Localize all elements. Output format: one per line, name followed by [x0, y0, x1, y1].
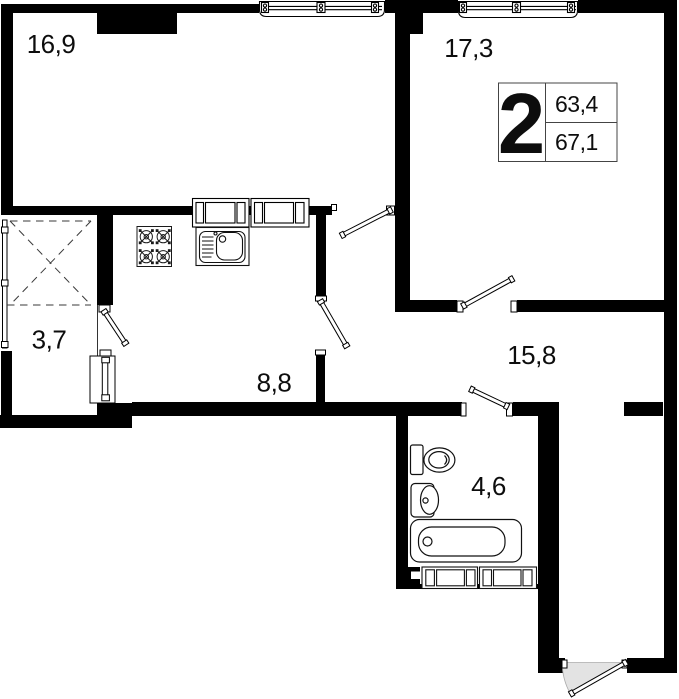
svg-text:8,8: 8,8	[257, 368, 292, 398]
svg-text:2: 2	[498, 77, 545, 172]
svg-text:67,1: 67,1	[555, 129, 598, 155]
svg-text:3,7: 3,7	[32, 325, 67, 355]
svg-text:4,6: 4,6	[471, 471, 506, 501]
svg-text:17,3: 17,3	[444, 33, 493, 63]
svg-text:16,9: 16,9	[27, 29, 76, 59]
svg-text:15,8: 15,8	[507, 340, 556, 370]
svg-text:63,4: 63,4	[555, 91, 598, 117]
